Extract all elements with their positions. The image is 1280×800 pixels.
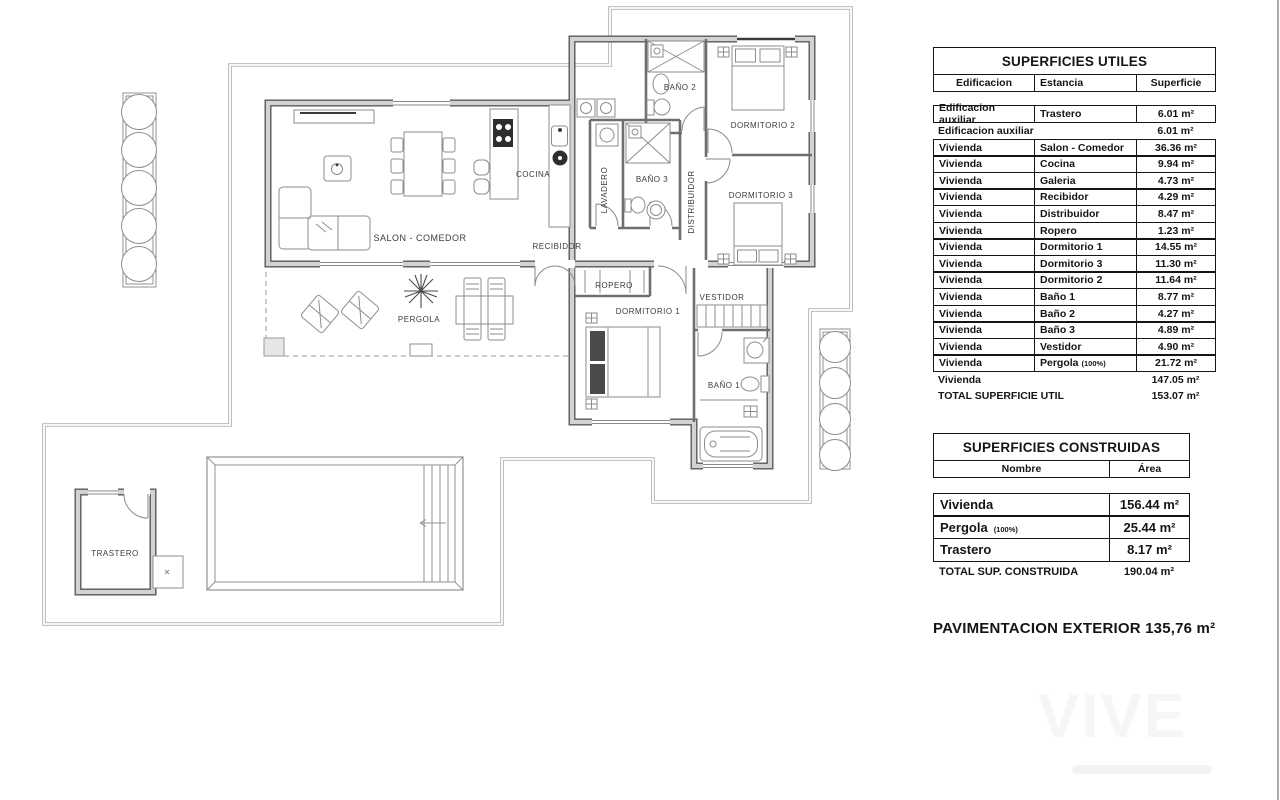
door-bano1	[698, 332, 722, 356]
table-row: ViviendaVestidor4.90 m²	[933, 338, 1216, 356]
pergola-area	[264, 272, 574, 356]
table-row: ViviendaBaño 18.77 m²	[933, 288, 1216, 306]
bed-dormitorio3	[718, 203, 796, 265]
table-row: ViviendaDistribuidor8.47 m²	[933, 205, 1216, 223]
bed-dormitorio2	[718, 46, 797, 110]
room-labels: SALON - COMEDOR COCINA LAVADERO BAÑO 3 D…	[91, 83, 795, 558]
table-row: ViviendaDormitorio 311.30 m²	[933, 255, 1216, 273]
laundry-appliances	[577, 99, 618, 146]
pavimentacion-exterior-note: PAVIMENTACION EXTERIOR 135,76 m²	[933, 620, 1215, 637]
table-title: SUPERFICIES UTILES	[933, 47, 1216, 75]
label-vestidor: VESTIDOR	[700, 293, 745, 302]
dining-table	[391, 132, 455, 196]
fixture-bano1	[744, 406, 757, 417]
table-row: ViviendaSalon - Comedor36.36 m²	[933, 139, 1216, 157]
table-row: ViviendaRopero1.23 m²	[933, 222, 1216, 240]
kitchen-counter	[549, 105, 570, 227]
sofa	[279, 187, 370, 250]
header-edificacion: Edificacion	[934, 75, 1034, 91]
table-row: Trastero8.17 m²	[933, 538, 1190, 562]
label-cocina: COCINA	[516, 170, 550, 179]
table-row: ViviendaGaleria4.73 m²	[933, 172, 1216, 190]
table-title: SUPERFICIES CONSTRUIDAS	[933, 433, 1190, 461]
kitchen-island	[474, 109, 518, 199]
sink-bano1	[744, 337, 769, 363]
label-ropero: ROPERO	[595, 281, 633, 290]
label-dormitorio1: DORMITORIO 1	[616, 307, 681, 316]
bathtub-bano1	[700, 427, 762, 461]
table-row: Vivienda156.44 m²	[933, 493, 1190, 517]
label-pergola: PERGOLA	[398, 315, 440, 324]
watermark-tagline	[1072, 765, 1212, 774]
table-superficies-construidas: SUPERFICIES CONSTRUIDAS Nombre Área Vivi…	[933, 433, 1190, 582]
label-dormitorio2: DORMITORIO 2	[731, 121, 796, 130]
pool-steps-arrow	[420, 520, 446, 527]
tv-unit	[294, 110, 374, 123]
header-area: Área	[1109, 461, 1189, 477]
table-total-row: TOTAL SUP. CONSTRUIDA190.04 m²	[933, 562, 1190, 582]
floor-plan-page: { "plan": { "labels": { "salon": "SALON …	[0, 0, 1280, 800]
toilet-bano3	[625, 197, 645, 213]
stove	[324, 156, 351, 181]
image-edge-line	[1277, 0, 1279, 800]
door-dormitorio1	[658, 266, 686, 294]
washer	[596, 124, 618, 146]
floor-plan-drawing: SALON - COMEDOR COCINA LAVADERO BAÑO 3 D…	[0, 0, 920, 660]
label-distribuidor: DISTRIBUIDOR	[687, 170, 696, 233]
shower-bano2	[648, 41, 704, 72]
table-row: ViviendaDormitorio 211.64 m²	[933, 271, 1216, 289]
table-row: Edificacion auxiliarTrastero6.01 m²	[933, 105, 1216, 123]
door-bano2	[682, 107, 704, 131]
label-lavadero: LAVADERO	[600, 167, 609, 213]
toilet-bano1	[741, 376, 769, 392]
table-superficies-utiles: SUPERFICIES UTILES Edificacion Estancia …	[933, 47, 1216, 404]
label-bano3: BAÑO 3	[636, 175, 668, 184]
door-trastero	[124, 494, 148, 518]
table-header-row: Nombre Área	[933, 460, 1190, 478]
table-subtotal-row: Vivienda147.05 m²	[933, 372, 1216, 388]
table-subtotal-row: Edificacion auxiliar6.01 m²	[933, 123, 1216, 139]
door-dormitorio3	[706, 159, 730, 183]
label-salon: SALON - COMEDOR	[373, 233, 466, 243]
trastero-annex	[153, 556, 183, 588]
label-bano1: BAÑO 1	[708, 381, 740, 390]
pool	[207, 457, 463, 590]
step-mat	[410, 344, 432, 356]
door-dormitorio2	[708, 129, 732, 153]
bed-dormitorio1	[586, 313, 660, 409]
outdoor-dining-set	[456, 278, 513, 340]
table-total-row: TOTAL SUPERFICIE UTIL153.07 m²	[933, 388, 1216, 404]
table-row: Pergola(100%)25.44 m²	[933, 515, 1190, 539]
entrance-opening	[535, 260, 575, 268]
toilet-bano2	[647, 99, 670, 115]
shower-bano3	[626, 123, 670, 163]
lounge-chair	[300, 294, 339, 333]
label-recibidor: RECIBIDOR	[533, 242, 582, 251]
label-dormitorio3: DORMITORIO 3	[729, 191, 794, 200]
planter-right	[820, 329, 851, 471]
pergola-pillar	[264, 338, 284, 356]
table-row: ViviendaBaño 24.27 m²	[933, 305, 1216, 323]
planter-left	[122, 93, 157, 287]
header-estancia: Estancia	[1034, 75, 1136, 91]
table-row: ViviendaRecibidor4.29 m²	[933, 188, 1216, 206]
plant	[404, 274, 438, 308]
label-bano2: BAÑO 2	[664, 83, 696, 92]
table-row: ViviendaDormitorio 114.55 m²	[933, 238, 1216, 256]
table-header-row: Edificacion Estancia Superficie	[933, 74, 1216, 92]
label-trastero: TRASTERO	[91, 549, 139, 558]
header-nombre: Nombre	[934, 461, 1109, 477]
watermark-logo: VIVE	[1000, 682, 1225, 752]
sink-bano3	[647, 201, 665, 219]
table-row: ViviendaBaño 34.89 m²	[933, 321, 1216, 339]
header-superficie: Superficie	[1136, 75, 1215, 91]
vestidor-wardrobe	[697, 305, 767, 327]
table-row: ViviendaPergola(100%)21.72 m²	[933, 354, 1216, 372]
table-row: ViviendaCocina9.94 m²	[933, 155, 1216, 173]
lounge-chair	[340, 290, 379, 329]
